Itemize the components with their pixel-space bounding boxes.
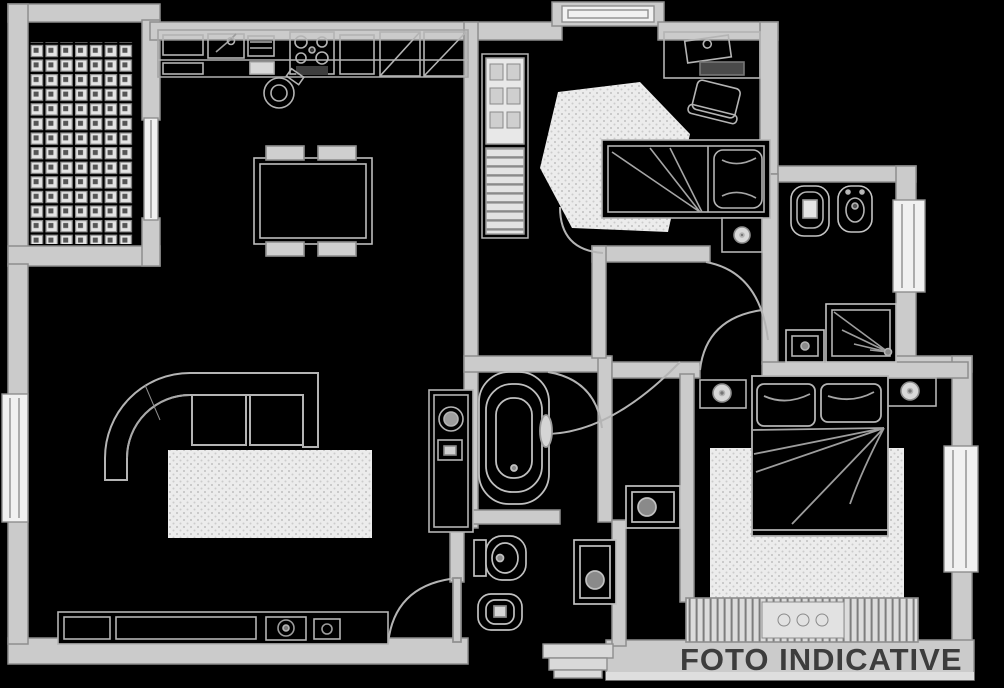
window-bath-right-icon bbox=[893, 200, 925, 292]
living-room bbox=[58, 373, 388, 644]
entrance-threshold-icon bbox=[543, 644, 613, 678]
wardrobe-icon bbox=[482, 54, 528, 238]
wall-terrace-right-lower bbox=[142, 218, 160, 266]
kitchen-cabinet bbox=[340, 35, 374, 74]
window-terrace-right-icon bbox=[144, 118, 158, 220]
bathroom-shower bbox=[786, 186, 896, 362]
window-master-right-icon bbox=[944, 446, 978, 572]
floor-plan-image: FOTO INDICATIVE bbox=[0, 0, 1004, 688]
radiator-icon bbox=[686, 598, 918, 642]
door-arc-wc bbox=[388, 578, 458, 644]
single-bed-icon bbox=[602, 140, 770, 218]
door-leaf-wc bbox=[453, 578, 461, 642]
kitchen bbox=[158, 30, 468, 256]
wall-corridor-east bbox=[680, 374, 694, 602]
bidet-icon bbox=[838, 186, 872, 232]
wall-bedroom2-west bbox=[592, 246, 606, 358]
wall-terrace-bottom bbox=[8, 246, 160, 266]
wc-basin-icon bbox=[574, 540, 616, 604]
wc-bidet-icon bbox=[478, 594, 522, 630]
wall-tubroom-east bbox=[598, 356, 612, 522]
corridor-basin-icon bbox=[626, 486, 680, 528]
nightstand-right-icon bbox=[886, 378, 936, 406]
bathroom-main bbox=[429, 372, 602, 532]
door-arc-bedroom2 bbox=[706, 262, 768, 340]
watermark-text: FOTO INDICATIVE bbox=[680, 642, 963, 677]
dining-table-icon bbox=[254, 146, 372, 256]
toilet-icon bbox=[791, 186, 829, 236]
office-nook bbox=[664, 32, 760, 124]
bathtub-icon bbox=[479, 372, 552, 504]
keyboard-icon bbox=[700, 62, 744, 75]
terrace-tile-floor bbox=[30, 42, 134, 244]
double-bed-icon bbox=[752, 376, 888, 536]
shower-icon bbox=[826, 304, 896, 362]
living-rug-texture bbox=[168, 450, 372, 538]
wall-terrace-left bbox=[8, 4, 28, 266]
floor-plan-svg: FOTO INDICATIVE bbox=[0, 0, 1004, 688]
wall-terrace-top bbox=[8, 4, 160, 22]
wc-toilet-icon bbox=[474, 536, 526, 580]
door-arc-bathroom bbox=[548, 372, 602, 428]
window-left-icon bbox=[2, 394, 28, 522]
wall-tubroom-top bbox=[464, 356, 610, 372]
wall-bedroom2-south bbox=[592, 246, 710, 262]
door-arc-master bbox=[700, 310, 762, 370]
window-top-icon bbox=[562, 6, 654, 22]
wall-top-main bbox=[150, 22, 562, 40]
tv-sideboard-icon bbox=[58, 612, 388, 644]
nightstand-left-icon bbox=[700, 380, 746, 408]
bath-sink-icon bbox=[786, 330, 824, 362]
nightstand-lamp-icon bbox=[722, 218, 762, 252]
washing-machine-column-icon bbox=[429, 390, 473, 532]
desk-chair-icon bbox=[687, 78, 744, 124]
